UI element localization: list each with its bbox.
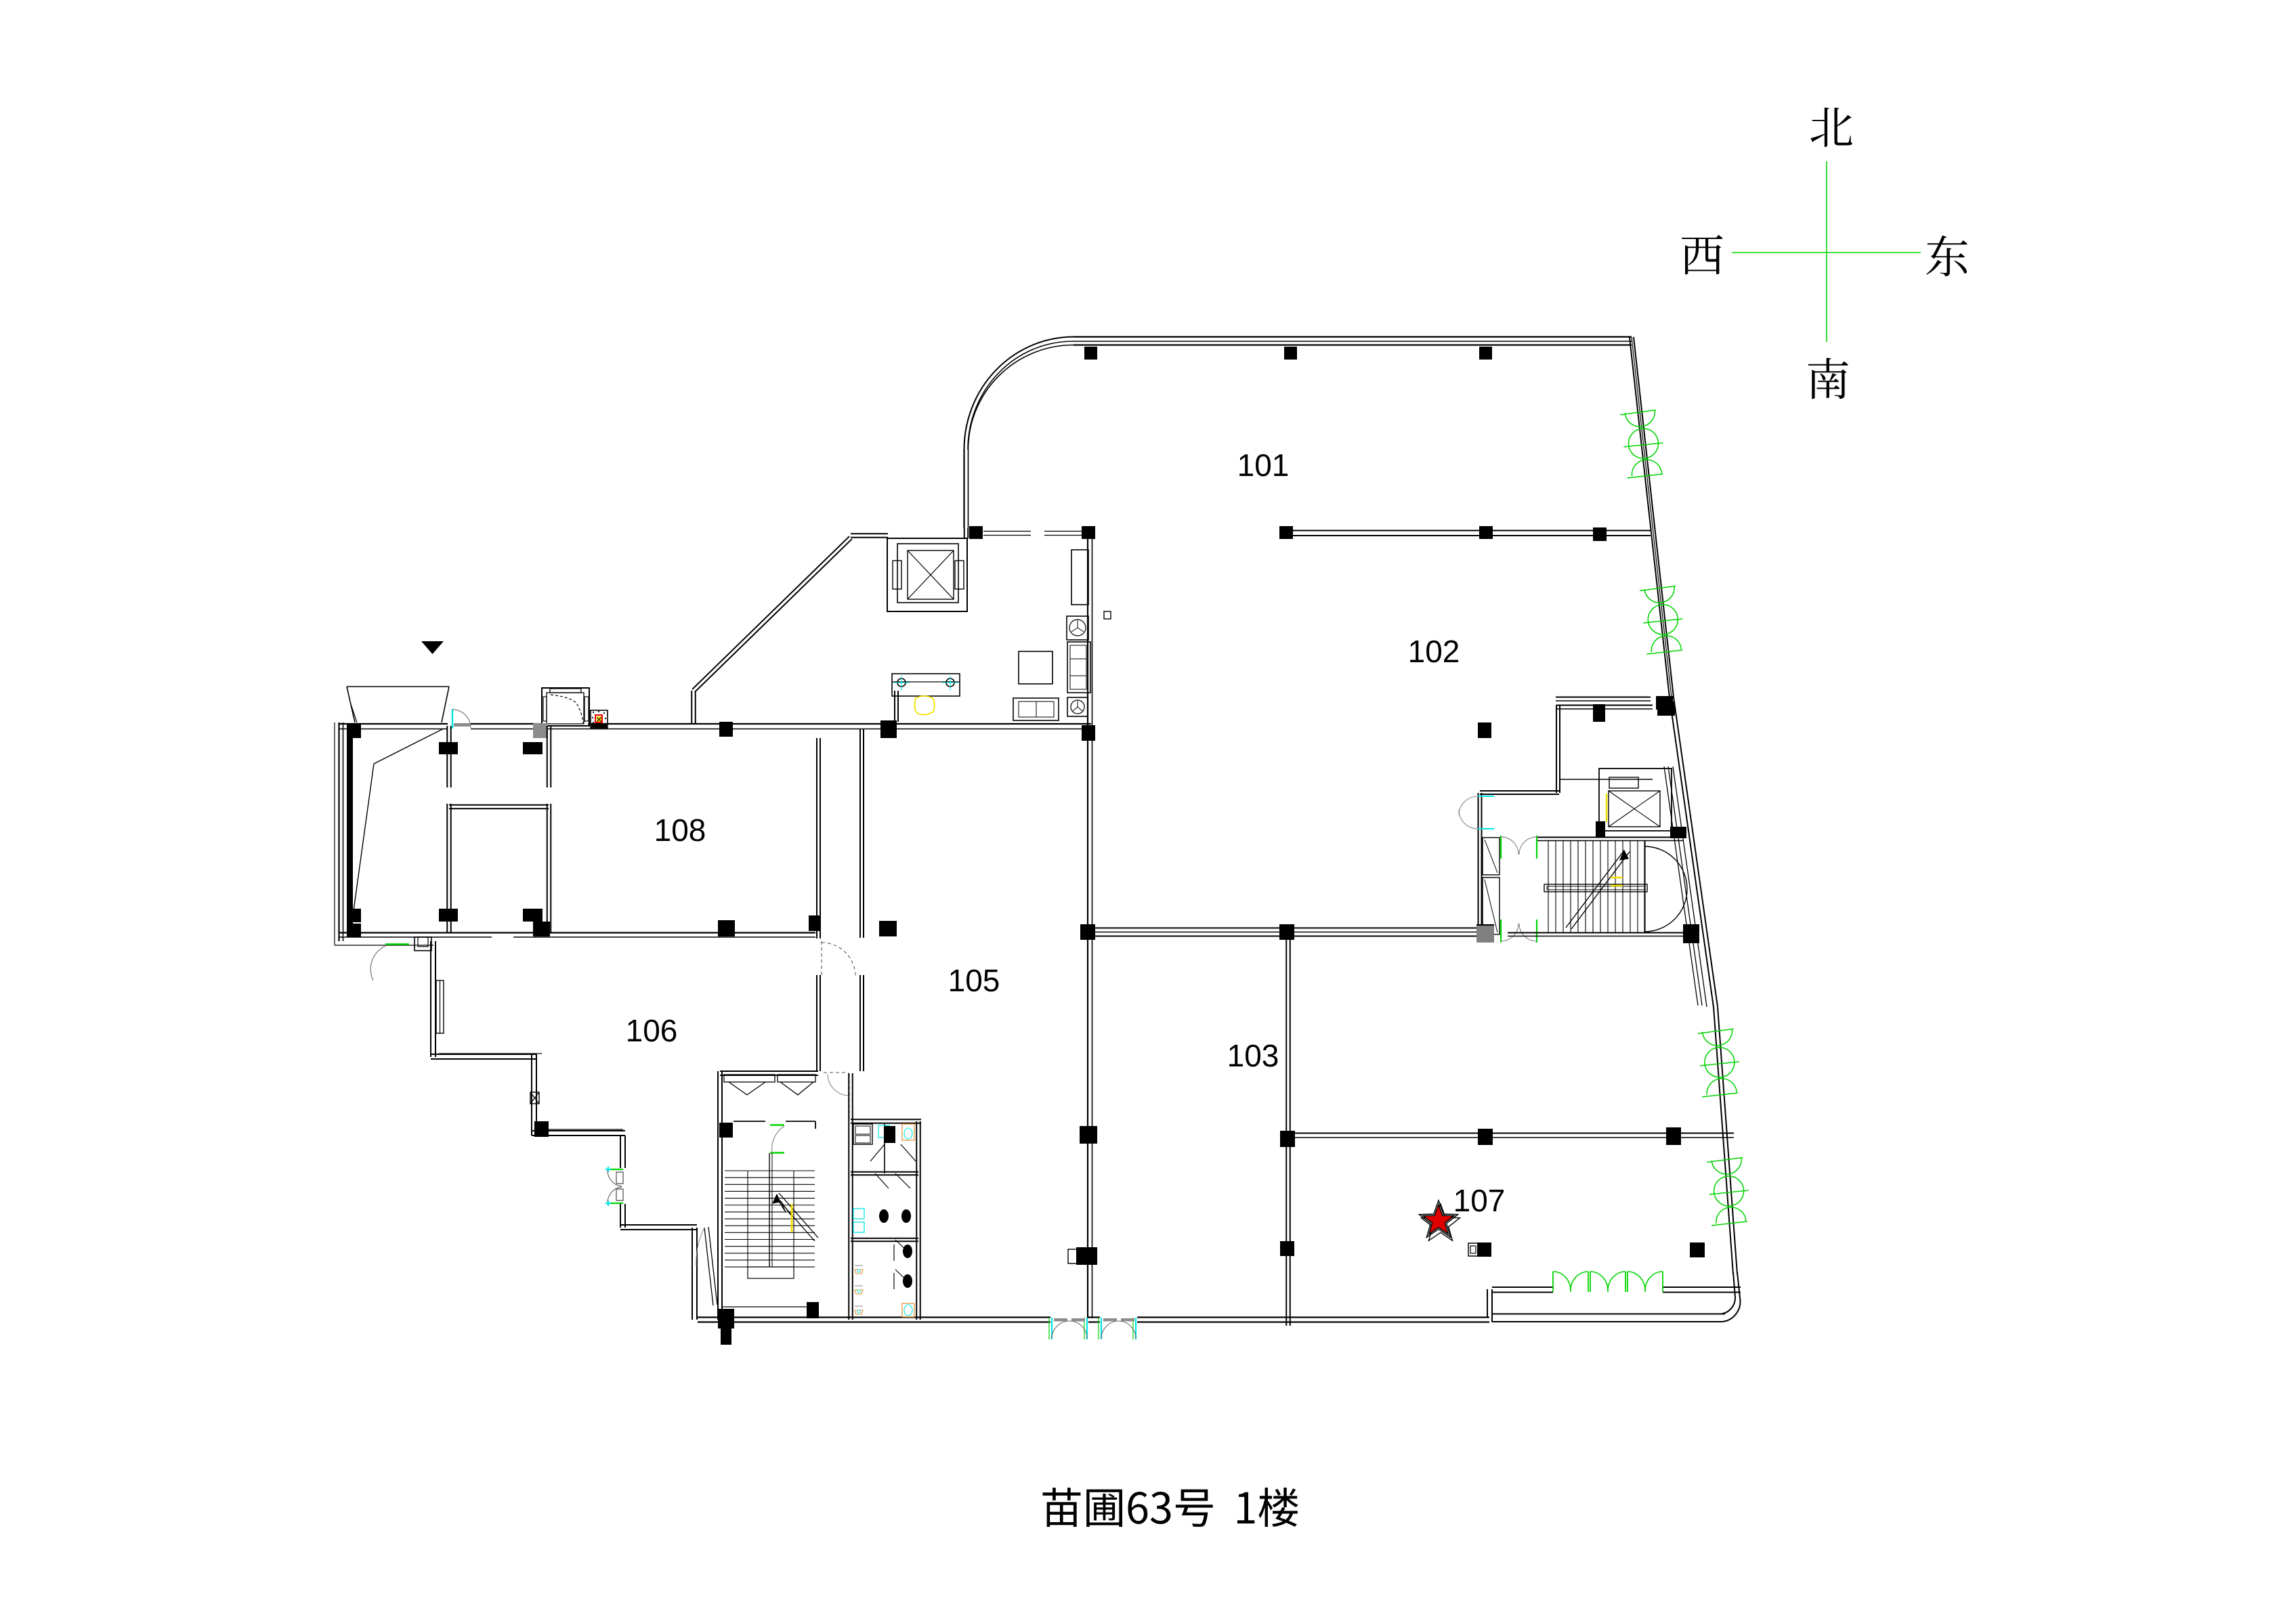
svg-text:106: 106 [626,1013,678,1048]
svg-text:102: 102 [1408,634,1460,669]
svg-text:103: 103 [1227,1038,1279,1073]
svg-text:105: 105 [948,963,1000,998]
svg-text:108: 108 [654,813,706,848]
svg-text:101: 101 [1237,448,1290,483]
svg-text:107: 107 [1453,1183,1506,1218]
